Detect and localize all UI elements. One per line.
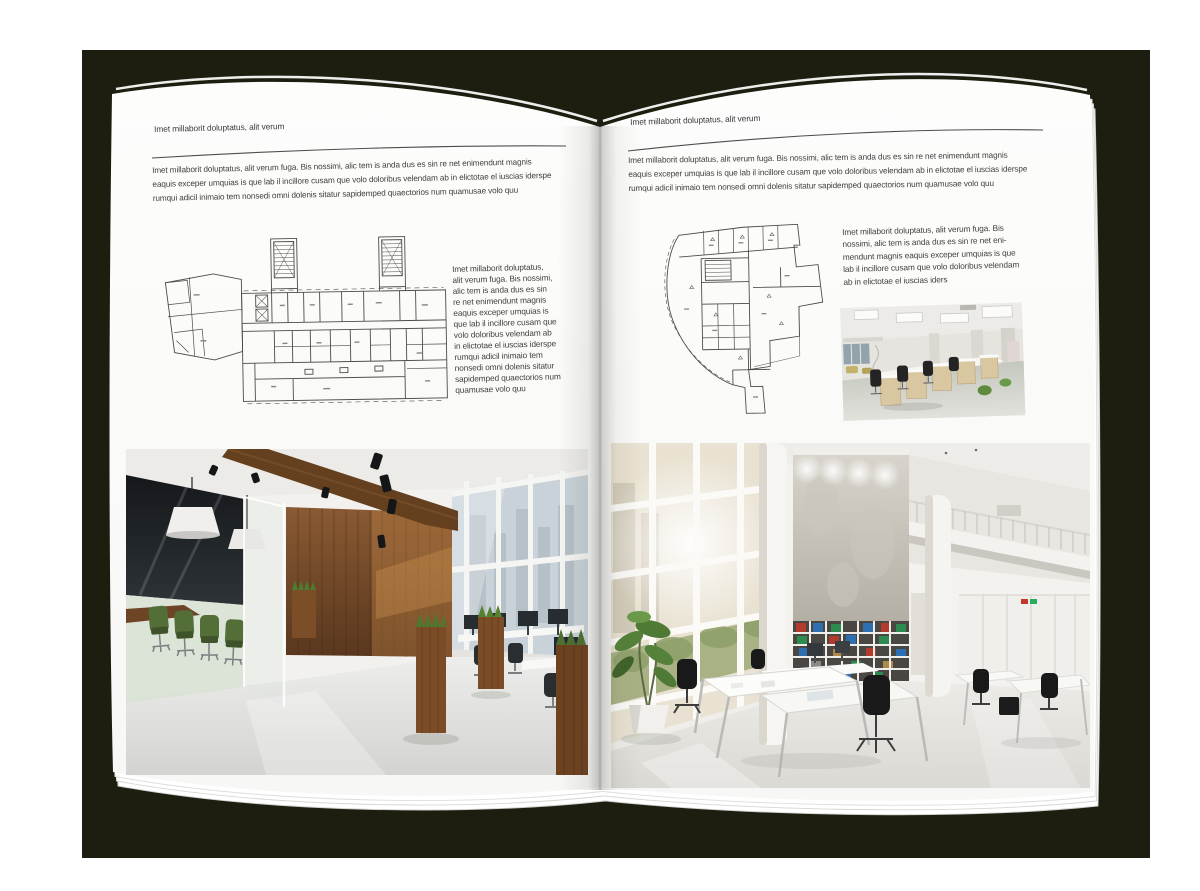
right-page-intro: Imet millaborit doluptatus, alit verum f… xyxy=(628,148,1079,196)
right-floor-plan xyxy=(648,217,836,418)
photo-dark-wood-office xyxy=(126,449,588,775)
left-floor-plan xyxy=(151,228,449,413)
photo-small-cubicle-office xyxy=(840,302,1025,421)
photo-bright-atrium-office xyxy=(611,443,1090,788)
spine-gutter-shade xyxy=(558,126,642,790)
magazine-mockup-canvas: Imet millaborit doluptatus, alit verum I… xyxy=(0,0,1200,891)
right-page-caption: Imet millaborit doluptatus, alit verum f… xyxy=(842,221,1044,288)
